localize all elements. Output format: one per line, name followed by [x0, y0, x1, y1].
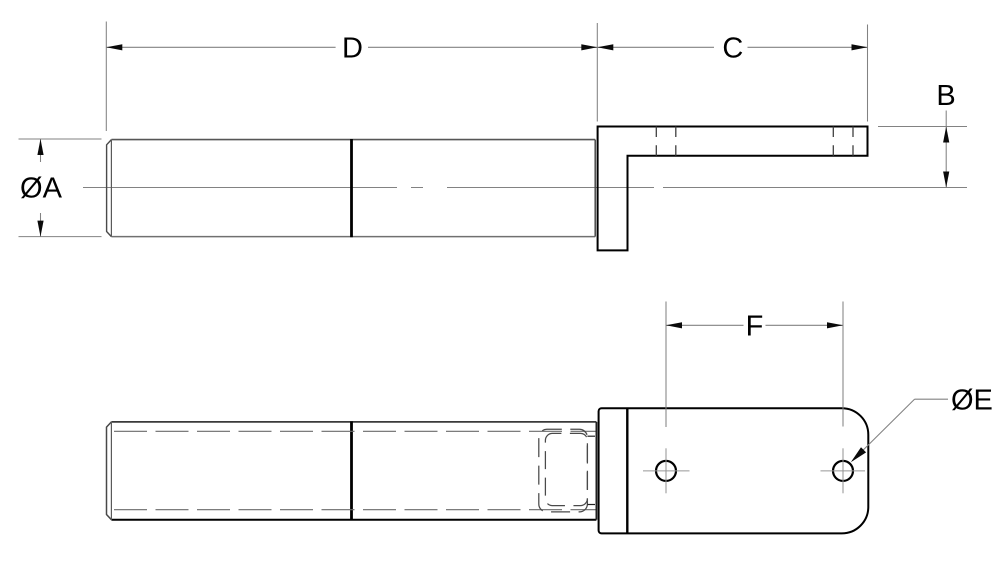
svg-text:D: D — [342, 33, 363, 65]
svg-text:ØE: ØE — [951, 385, 993, 417]
svg-text:B: B — [936, 80, 955, 112]
svg-text:F: F — [746, 311, 764, 343]
svg-text:ØA: ØA — [20, 173, 63, 205]
svg-text:C: C — [722, 33, 743, 65]
